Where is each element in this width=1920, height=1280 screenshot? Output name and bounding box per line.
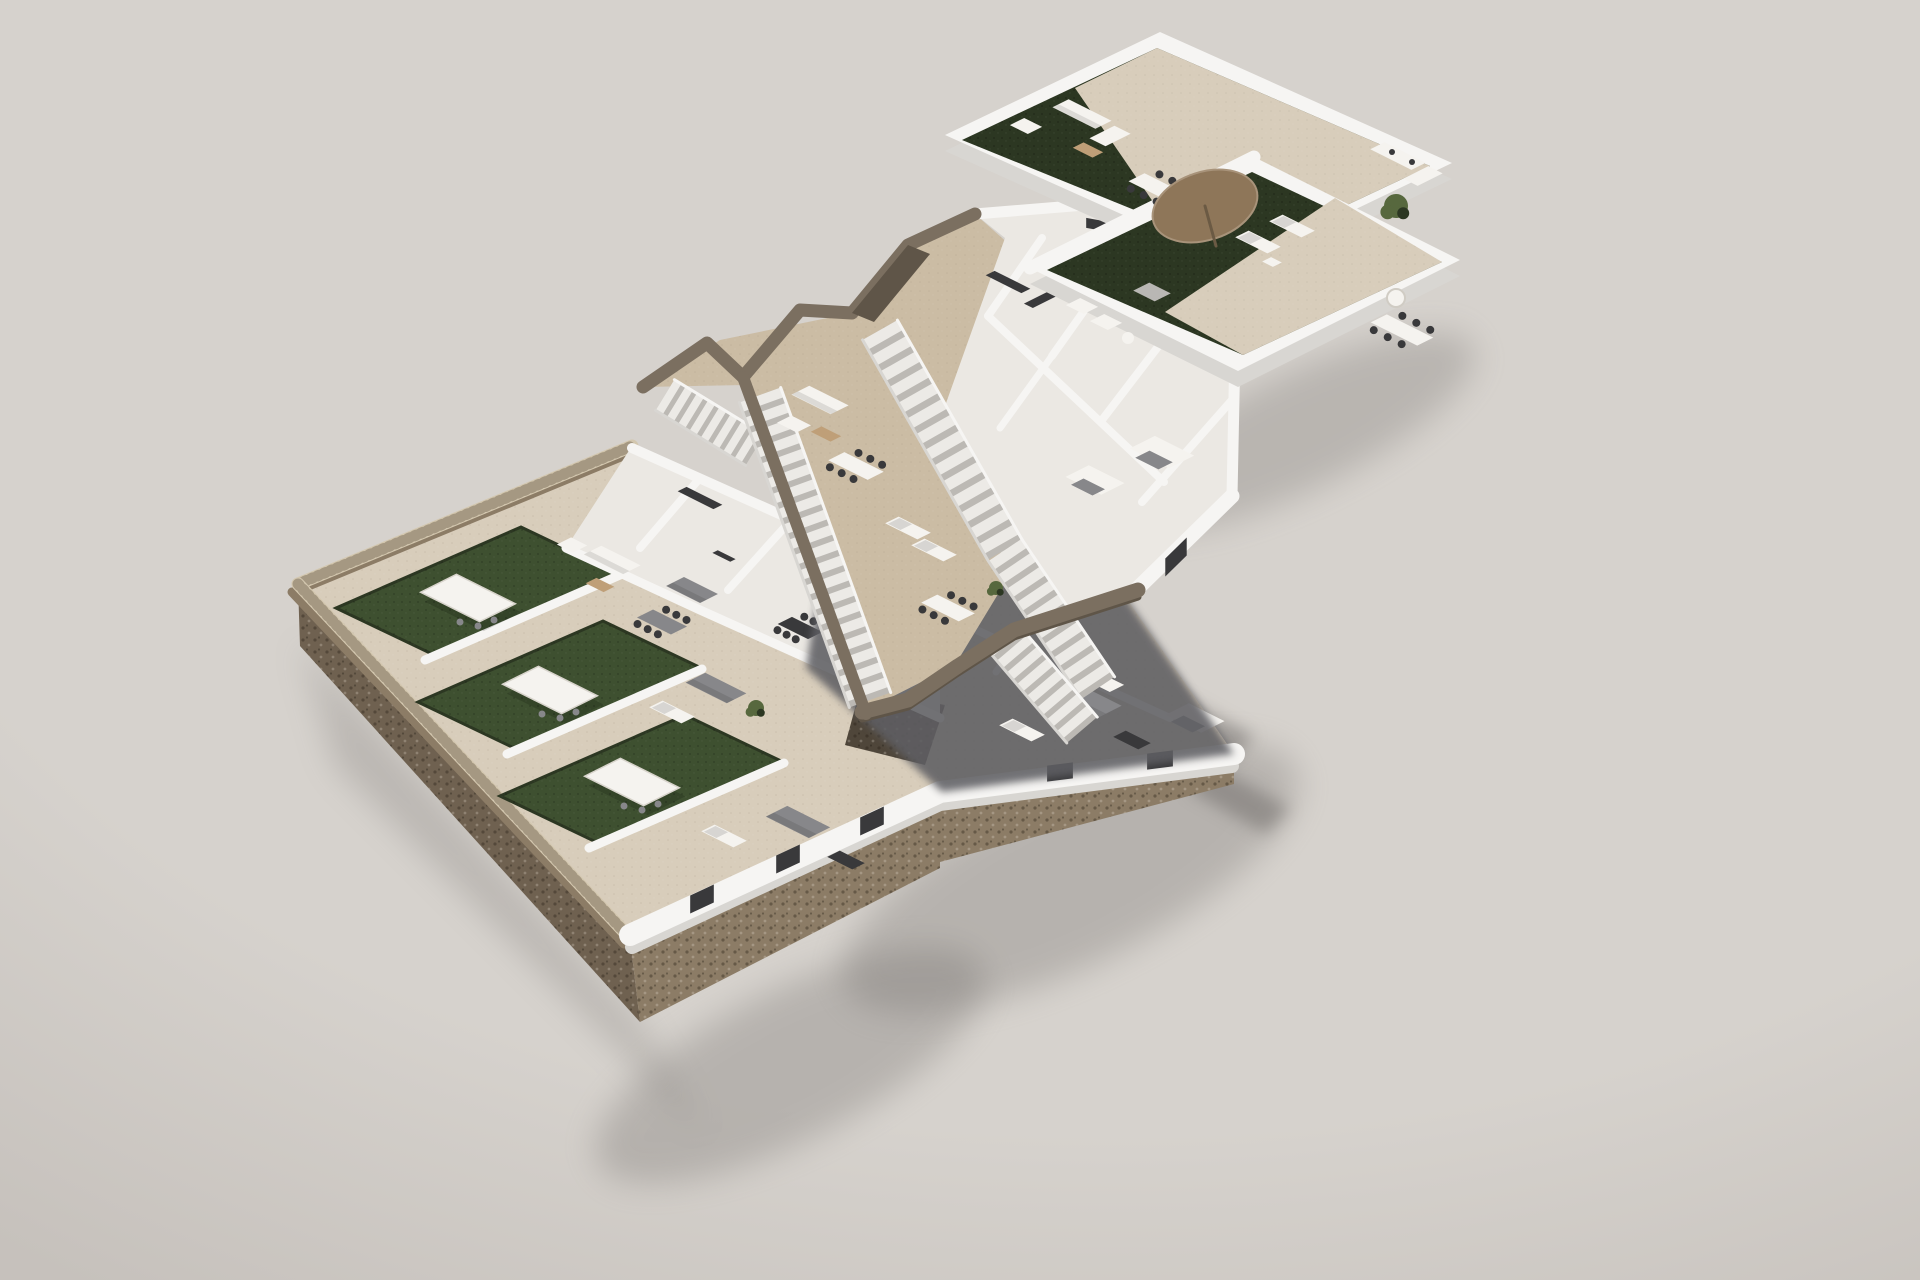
chair (662, 606, 670, 614)
chair (930, 611, 938, 619)
chair (866, 455, 874, 463)
chair (941, 617, 949, 625)
chair (634, 620, 642, 628)
plant-part (1380, 205, 1394, 219)
chair (838, 469, 846, 477)
chair (826, 463, 834, 471)
chair (1370, 326, 1378, 334)
chair (1140, 191, 1148, 199)
chair (644, 625, 652, 633)
chair (947, 591, 955, 599)
chair (800, 613, 808, 621)
plant-part (746, 707, 756, 717)
chair (792, 635, 800, 643)
pergola-canopy-part (573, 709, 580, 716)
pergola-canopy-part (475, 623, 482, 630)
chair (1155, 170, 1163, 178)
chair (783, 631, 791, 639)
chair (970, 602, 978, 610)
chair (1426, 326, 1434, 334)
pouf (1387, 289, 1405, 307)
chair (1127, 185, 1135, 193)
chair (1398, 312, 1406, 320)
pergola-canopy-part (655, 801, 662, 808)
chair (1384, 333, 1392, 341)
render-stage (0, 0, 1920, 1280)
pergola-canopy-part (539, 711, 546, 718)
chair (958, 597, 966, 605)
chair (1412, 319, 1420, 327)
roof-furniture-part (1389, 149, 1395, 155)
pergola-canopy-part (491, 617, 498, 624)
chair (918, 606, 926, 614)
chair (672, 611, 680, 619)
pergola-canopy-part (639, 807, 646, 814)
chair (855, 449, 863, 457)
chair (1398, 340, 1406, 348)
chair (682, 616, 690, 624)
chair (773, 626, 781, 634)
chair (878, 461, 886, 469)
pergola-canopy-part (557, 715, 564, 722)
plant-part (987, 587, 995, 595)
side-table (1122, 332, 1134, 344)
pergola-canopy-part (621, 803, 628, 810)
chair (654, 630, 662, 638)
plant-part (757, 709, 765, 717)
plant-part (997, 589, 1004, 596)
plant-part (1397, 207, 1409, 219)
exploded-floorplan-render (0, 0, 1920, 1280)
chair (849, 475, 857, 483)
roof-furniture-part (1409, 159, 1415, 165)
pergola-canopy-part (457, 619, 464, 626)
